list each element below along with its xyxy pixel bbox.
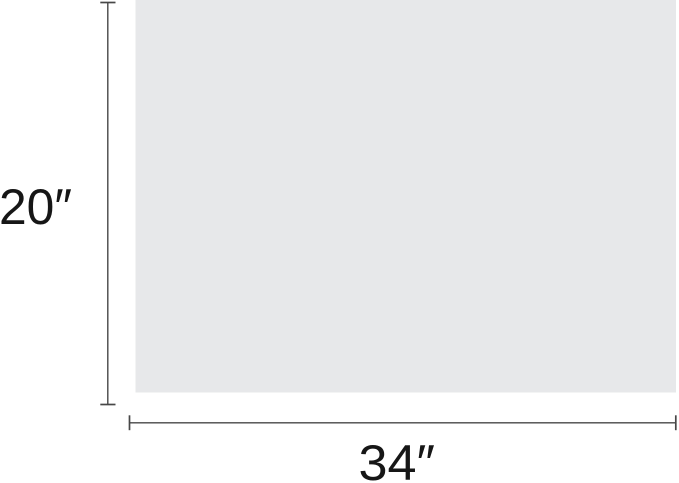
svg-text:34″: 34″: [359, 435, 436, 483]
svg-text:20″: 20″: [0, 179, 72, 235]
